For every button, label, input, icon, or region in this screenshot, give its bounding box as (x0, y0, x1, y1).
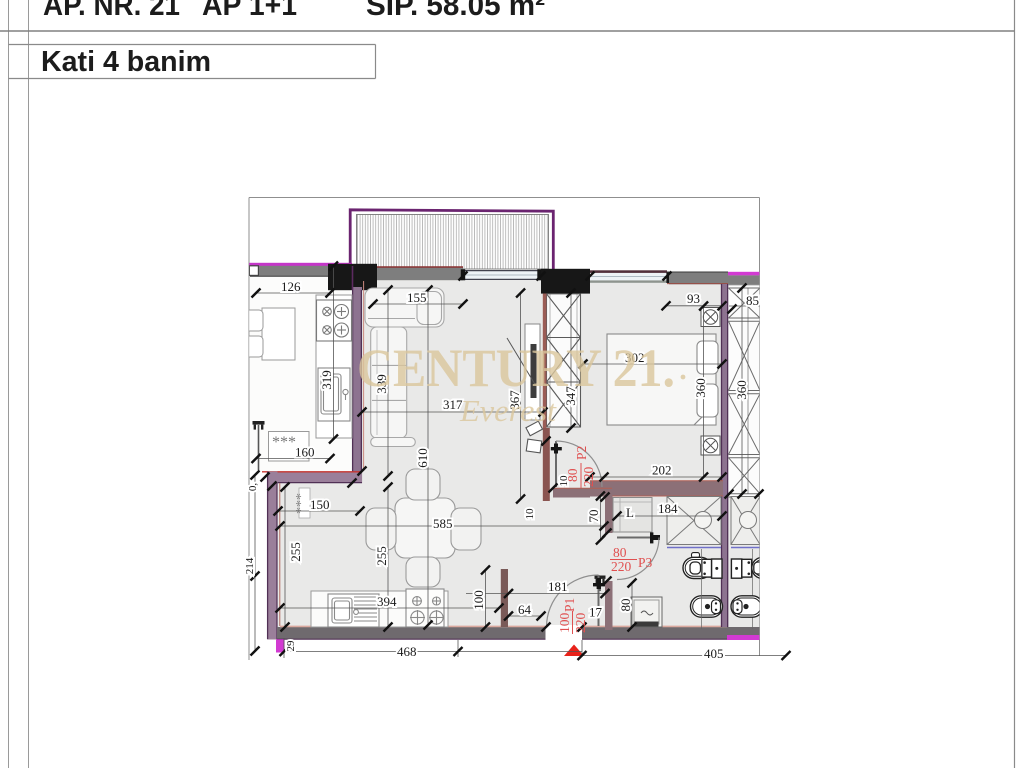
svg-text:P3: P3 (638, 555, 653, 570)
svg-text:468: 468 (397, 644, 417, 659)
svg-text:80: 80 (565, 468, 580, 482)
svg-text:70: 70 (586, 510, 601, 523)
svg-text:220: 220 (611, 559, 632, 574)
svg-text:181: 181 (548, 579, 568, 594)
svg-text:Everest: Everest (459, 393, 557, 428)
svg-text:93: 93 (687, 291, 700, 306)
svg-text:CENTURY 21.: CENTURY 21. (357, 338, 675, 398)
svg-text:394: 394 (377, 594, 397, 609)
svg-text:85: 85 (746, 293, 759, 308)
svg-text:***: *** (272, 434, 296, 451)
svg-text:29: 29 (285, 640, 297, 652)
svg-text:155: 155 (407, 290, 427, 305)
svg-text:Kati 4 banim: Kati 4 banim (41, 46, 211, 78)
svg-text:100: 100 (557, 613, 572, 634)
svg-text:AP 1+1: AP 1+1 (202, 0, 297, 22)
svg-text:126: 126 (281, 279, 301, 294)
svg-text:184: 184 (658, 501, 678, 516)
svg-text:360: 360 (693, 378, 708, 398)
svg-text:0,: 0, (247, 483, 259, 492)
svg-text:100: 100 (471, 590, 486, 610)
svg-text:64: 64 (518, 602, 532, 617)
svg-text:255: 255 (288, 542, 303, 562)
svg-text:150: 150 (310, 497, 330, 512)
svg-text:10: 10 (524, 508, 536, 520)
svg-text:319: 319 (319, 370, 334, 390)
svg-text:17: 17 (589, 605, 603, 620)
svg-text:220: 220 (581, 467, 596, 488)
svg-text:585: 585 (433, 516, 453, 531)
svg-text:610: 610 (415, 448, 430, 468)
svg-text:220: 220 (573, 613, 588, 634)
svg-text:214: 214 (244, 557, 256, 574)
svg-text:L: L (626, 505, 634, 520)
svg-text:160: 160 (295, 445, 315, 460)
svg-text:P2: P2 (574, 446, 589, 460)
svg-text:360: 360 (734, 380, 749, 400)
svg-text:80: 80 (618, 599, 633, 612)
svg-text:AP. NR. 21: AP. NR. 21 (43, 0, 180, 22)
svg-text:P1: P1 (562, 598, 577, 612)
svg-text:255: 255 (374, 546, 389, 566)
svg-text:202: 202 (652, 463, 672, 478)
svg-text:80: 80 (613, 545, 627, 560)
svg-text:405: 405 (704, 646, 724, 661)
svg-text:SIP. 58.05 m²: SIP. 58.05 m² (366, 0, 545, 22)
